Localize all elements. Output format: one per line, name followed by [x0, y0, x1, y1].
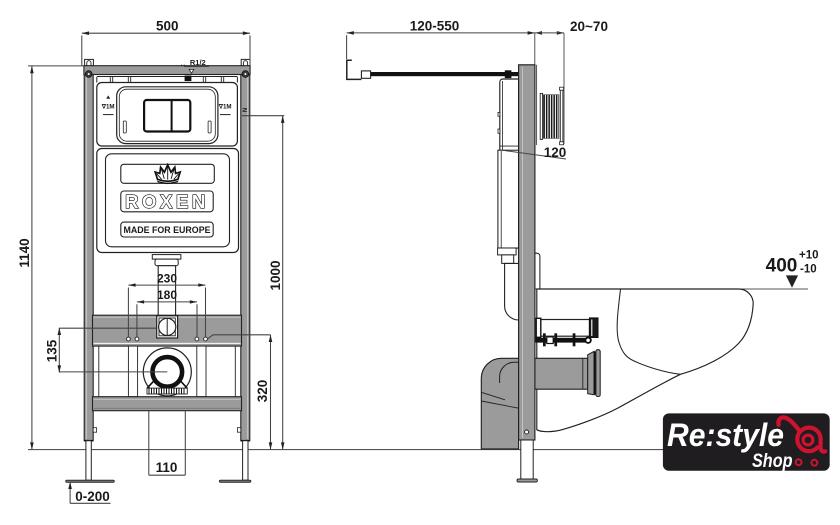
svg-text:400: 400 — [766, 255, 798, 276]
svg-text:ROXEN: ROXEN — [125, 191, 209, 212]
svg-text:180: 180 — [157, 288, 177, 302]
svg-text:Shop: Shop — [752, 450, 793, 472]
svg-text:R1/2: R1/2 — [190, 58, 206, 67]
svg-text:230: 230 — [157, 271, 177, 285]
svg-text:Re:style: Re:style — [667, 417, 784, 453]
svg-text:135: 135 — [44, 339, 59, 362]
svg-text:1140: 1140 — [17, 238, 32, 267]
svg-text:∇1M: ∇1M — [218, 104, 232, 111]
svg-text:0-200: 0-200 — [75, 489, 110, 504]
svg-text:MADE FOR EUROPE: MADE FOR EUROPE — [124, 225, 211, 235]
svg-text:∇1M: ∇1M — [101, 104, 115, 111]
svg-text:120: 120 — [544, 145, 567, 160]
svg-text:120-550: 120-550 — [410, 18, 460, 33]
svg-text:-10: -10 — [800, 263, 817, 275]
svg-text:110: 110 — [156, 460, 178, 475]
svg-text:1000: 1000 — [268, 260, 283, 290]
svg-text:20~70: 20~70 — [570, 19, 608, 34]
svg-text:+10: +10 — [799, 250, 819, 262]
svg-text:N: N — [243, 108, 249, 112]
svg-text:320: 320 — [255, 380, 270, 403]
svg-text:500: 500 — [156, 19, 179, 34]
